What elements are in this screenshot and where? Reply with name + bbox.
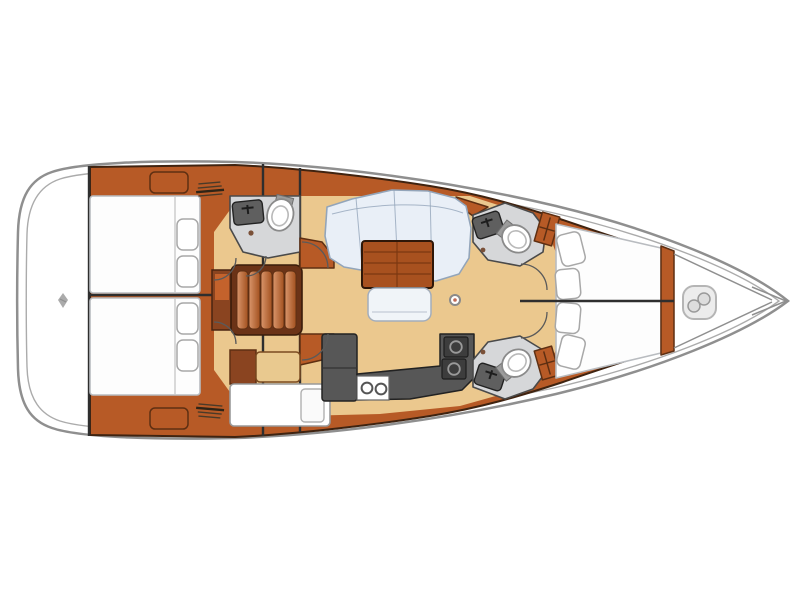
nav-cabinet: [230, 350, 256, 384]
pillow: [555, 268, 582, 300]
companionway-steps: [237, 271, 296, 329]
chart-table-panel: [301, 389, 324, 422]
boat-floorplan: [0, 0, 800, 601]
pillow: [177, 340, 198, 371]
salon-bench: [368, 288, 431, 321]
pillow: [177, 219, 198, 250]
nav-seat: [256, 352, 300, 382]
galley-sink: [362, 383, 373, 394]
drain: [248, 230, 253, 235]
pillow: [555, 302, 582, 334]
windlass-icon: [683, 286, 716, 319]
aft-head: [230, 193, 300, 258]
galley-sink: [376, 384, 387, 395]
drain: [481, 350, 486, 355]
drain: [481, 248, 486, 253]
pillow: [177, 256, 198, 287]
floorplan-svg: [0, 0, 800, 601]
cabin-locker: [150, 408, 188, 429]
cabin-locker: [150, 172, 188, 193]
pillow: [177, 303, 198, 334]
sink: [232, 199, 264, 225]
